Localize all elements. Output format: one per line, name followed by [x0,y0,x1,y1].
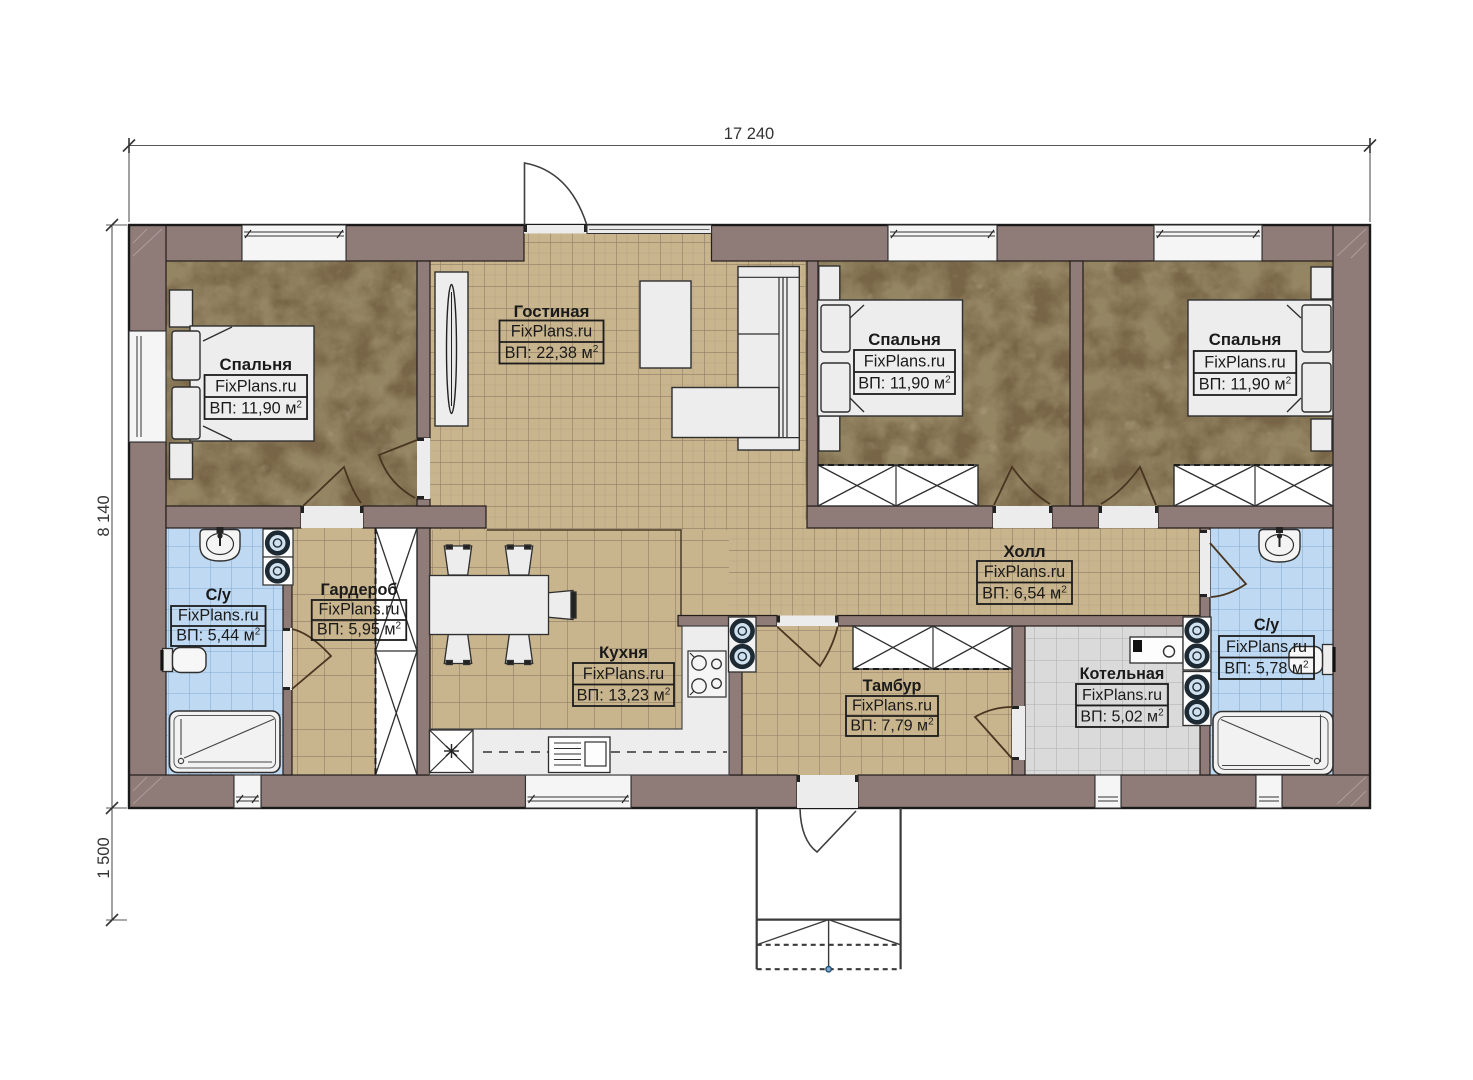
svg-text:FixPlans.ru: FixPlans.ru [178,607,259,625]
svg-text:FixPlans.ru: FixPlans.ru [319,601,400,619]
svg-text:С/у: С/у [1254,616,1279,634]
svg-text:FixPlans.ru: FixPlans.ru [984,563,1065,581]
svg-text:Спальня: Спальня [868,330,941,349]
svg-text:Гардероб: Гардероб [321,581,398,599]
svg-text:Спальня: Спальня [220,355,293,374]
svg-text:1 500: 1 500 [95,837,113,878]
svg-text:FixPlans.ru: FixPlans.ru [1226,638,1307,656]
svg-text:ВП: 22,38 м2: ВП: 22,38 м2 [505,344,599,362]
svg-text:Холл: Холл [1003,542,1045,561]
svg-text:FixPlans.ru: FixPlans.ru [864,353,945,371]
svg-text:ВП: 6,54 м2: ВП: 6,54 м2 [982,585,1067,603]
svg-text:FixPlans.ru: FixPlans.ru [852,698,932,715]
svg-text:С/у: С/у [206,586,231,604]
svg-text:Котельная: Котельная [1080,665,1165,683]
svg-text:ВП: 11,90 м2: ВП: 11,90 м2 [210,400,303,418]
svg-text:Гостиная: Гостиная [514,302,590,321]
svg-text:FixPlans.ru: FixPlans.ru [215,378,296,396]
svg-text:ВП: 5,44 м2: ВП: 5,44 м2 [176,627,261,645]
svg-text:ВП: 7,79 м2: ВП: 7,79 м2 [850,717,934,735]
svg-text:FixPlans.ru: FixPlans.ru [1082,687,1162,704]
svg-text:FixPlans.ru: FixPlans.ru [1204,354,1285,372]
svg-text:17 240: 17 240 [724,125,774,143]
svg-text:ВП: 11,90 м2: ВП: 11,90 м2 [858,375,951,393]
svg-text:Кухня: Кухня [599,643,648,662]
svg-text:ВП: 5,02 м2: ВП: 5,02 м2 [1080,708,1164,726]
svg-text:ВП: 5,78 м2: ВП: 5,78 м2 [1224,660,1309,678]
svg-text:ВП: 13,23 м2: ВП: 13,23 м2 [577,687,671,705]
svg-text:8 140: 8 140 [95,495,113,536]
svg-text:Тамбур: Тамбур [863,677,922,695]
svg-text:ВП: 5,95 м2: ВП: 5,95 м2 [317,621,402,639]
svg-text:FixPlans.ru: FixPlans.ru [583,665,664,683]
svg-text:Спальня: Спальня [1209,330,1282,349]
svg-text:FixPlans.ru: FixPlans.ru [511,323,592,341]
svg-text:ВП: 11,90 м2: ВП: 11,90 м2 [1199,376,1292,394]
